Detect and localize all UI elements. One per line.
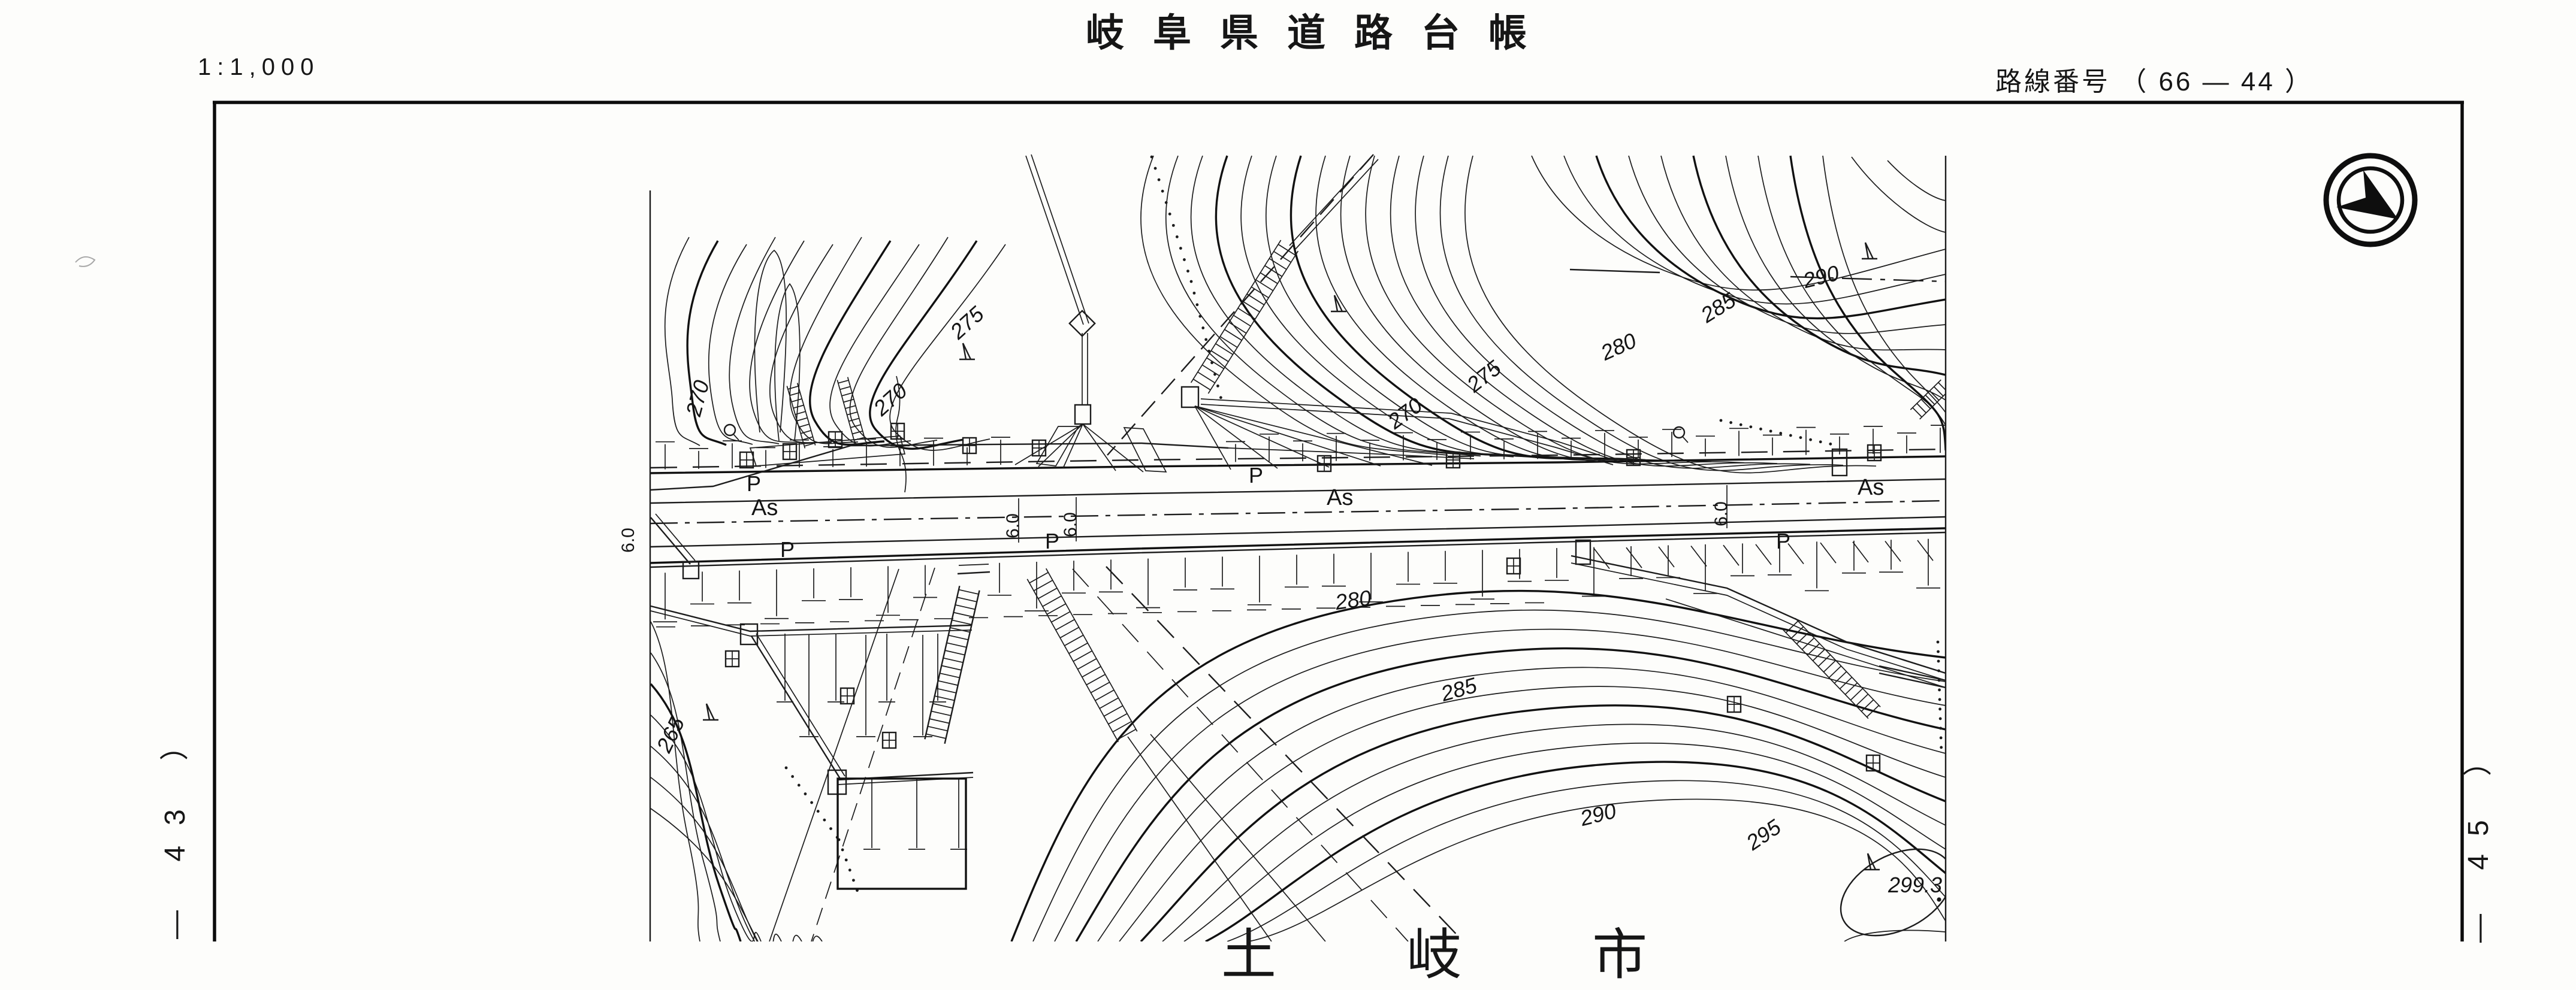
contour-elevation-label: 285 — [1696, 287, 1740, 328]
contour-elevation-label: 299.3 — [1888, 873, 1942, 897]
paddy-field-icon — [829, 432, 842, 447]
paddy-field-icon — [841, 688, 854, 704]
well-symbol-icon — [724, 425, 739, 440]
parcel-label: P — [1776, 529, 1790, 553]
parcel-label: P — [780, 537, 795, 562]
pavement-label: As — [751, 495, 778, 520]
parcel-label: P — [1249, 463, 1263, 488]
contour-elevation-label: 280 — [1596, 328, 1639, 365]
road-width-label: 6.0 — [1711, 501, 1731, 526]
contour-elevation-label: 270 — [681, 377, 714, 419]
tree-symbol-icon — [1862, 243, 1877, 259]
contour-elevation-label: 270 — [1382, 393, 1427, 434]
contour-elevation-label: 295 — [1741, 814, 1786, 855]
north-arrow-icon — [2326, 156, 2415, 244]
pavement-label: As — [1858, 475, 1884, 500]
road-width-label: 6.0 — [618, 528, 638, 553]
paddy-field-icon — [783, 444, 796, 459]
tree-symbol-icon — [703, 704, 718, 720]
paddy-field-icon — [1507, 558, 1520, 574]
tree-symbol-icon — [959, 343, 975, 359]
contour-elevation-label: 290 — [1577, 798, 1618, 831]
contour-elevation-label: 290 — [1800, 261, 1841, 293]
contour-elevation-label: 285 — [1438, 673, 1480, 707]
contour-elevation-label: 265 — [651, 713, 690, 757]
road-ledger-map-canvas: AsAsAsPPPPP6.06.06.06.027027027527027528… — [0, 0, 2576, 941]
road-width-label: 6.0 — [1003, 513, 1023, 538]
paddy-field-icon — [883, 732, 896, 748]
parcel-label: P — [747, 471, 761, 496]
paddy-field-icon — [1728, 697, 1741, 712]
paddy-field-icon — [963, 438, 976, 453]
paddy-field-icon — [726, 651, 739, 667]
road-width-label: 6.0 — [1061, 512, 1080, 537]
pencil-mark — [76, 257, 95, 267]
paddy-field-icon — [1867, 755, 1880, 771]
contour-elevation-label: 270 — [868, 378, 912, 420]
pavement-label: As — [1327, 485, 1353, 510]
parcel-label: P — [1045, 529, 1059, 553]
contour-elevation-label: 275 — [945, 301, 989, 344]
sheet-border — [213, 102, 2464, 941]
spot-height-dot — [1937, 897, 1941, 901]
paddy-field-icon — [740, 452, 753, 468]
contour-elevation-label: 280 — [1333, 585, 1373, 614]
